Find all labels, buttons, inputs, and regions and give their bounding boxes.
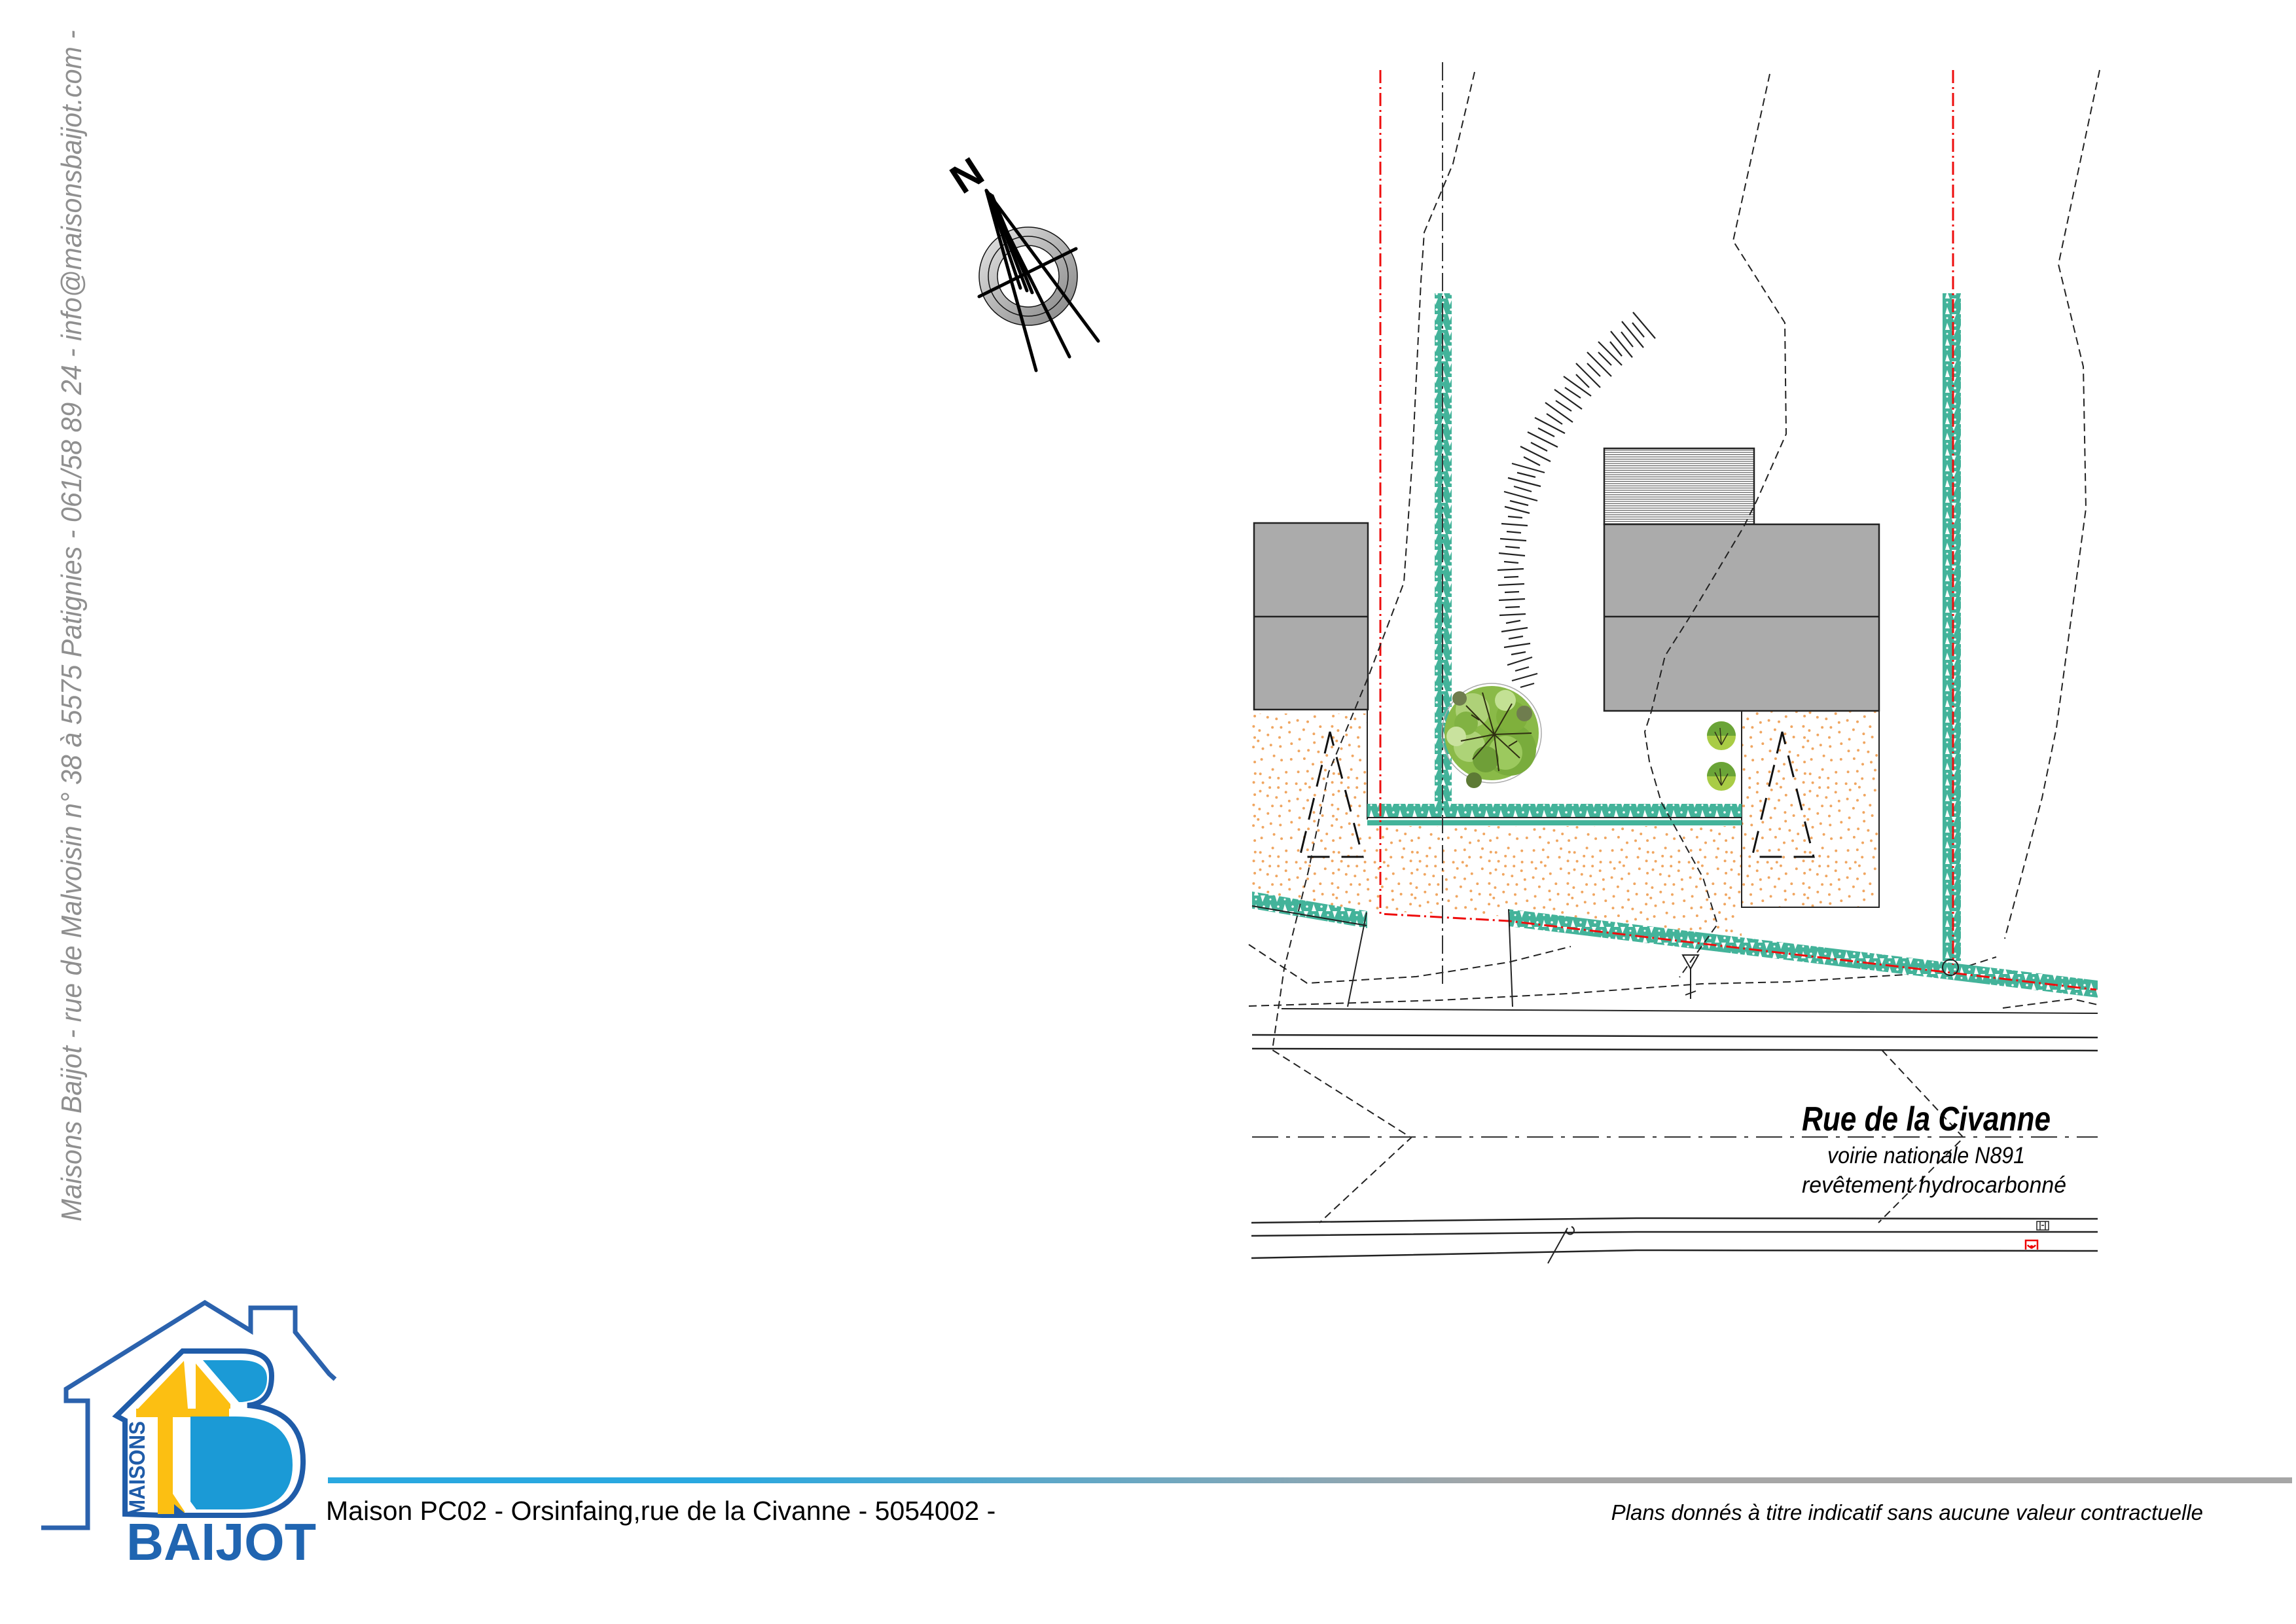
- svg-text:Plans donnés à titre indicatif: Plans donnés à titre indicatif sans aucu…: [1611, 1500, 2203, 1525]
- svg-text:voirie nationale N891: voirie nationale N891: [1827, 1143, 2025, 1168]
- svg-text:revêtement hydrocarbonné: revêtement hydrocarbonné: [1802, 1172, 2066, 1198]
- svg-text:MAISONS: MAISONS: [125, 1421, 150, 1517]
- svg-text:Maisons Baijot - rue de Malvoi: Maisons Baijot - rue de Malvoisin n° 38 …: [56, 30, 88, 1221]
- svg-text:Rue de la Civanne: Rue de la Civanne: [1802, 1100, 2051, 1138]
- svg-text:N: N: [942, 149, 992, 202]
- svg-text:Maison PC02 - Orsinfaing,rue d: Maison PC02 - Orsinfaing,rue de la Civan…: [326, 1496, 996, 1526]
- svg-text:BAIJOT: BAIJOT: [126, 1513, 316, 1571]
